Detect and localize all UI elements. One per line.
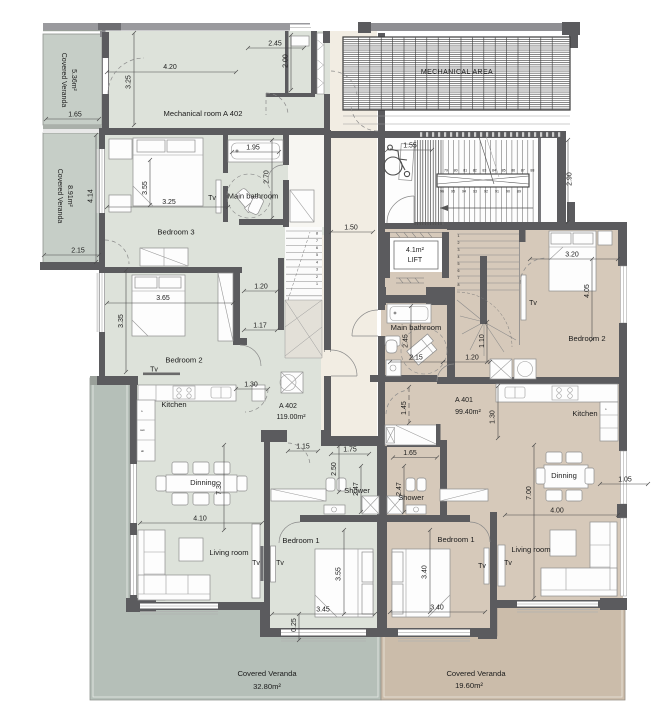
svg-text:A 402: A 402	[279, 403, 297, 410]
svg-text:Main bathroom: Main bathroom	[228, 192, 279, 201]
svg-text:91: 91	[495, 190, 499, 194]
svg-text:1.10: 1.10	[479, 334, 486, 348]
svg-text:Bedroom 2: Bedroom 2	[568, 334, 605, 343]
svg-text:3.40: 3.40	[430, 605, 444, 612]
svg-text:4.1m²: 4.1m²	[406, 247, 425, 254]
svg-text:Tv: Tv	[150, 367, 158, 374]
svg-text:7.00: 7.00	[526, 486, 533, 500]
svg-text:4.10: 4.10	[193, 516, 207, 523]
svg-text:Living room: Living room	[209, 548, 248, 557]
svg-text:2.15: 2.15	[71, 248, 85, 255]
svg-text:1.55: 1.55	[403, 143, 417, 150]
svg-text:8.91m²: 8.91m²	[66, 185, 73, 207]
svg-text:1.17: 1.17	[253, 323, 267, 330]
svg-text:119.00m²: 119.00m²	[276, 414, 306, 421]
svg-text:4.05: 4.05	[584, 284, 591, 298]
svg-text:88: 88	[530, 169, 534, 173]
svg-text:Shower: Shower	[398, 493, 424, 502]
svg-text:Covered Veranda: Covered Veranda	[60, 53, 67, 108]
svg-text:3.25: 3.25	[126, 75, 133, 89]
svg-text:8: 8	[458, 283, 460, 287]
svg-text:3.55: 3.55	[336, 567, 343, 581]
svg-text:Tv: Tv	[208, 195, 216, 202]
svg-text:2.00: 2.00	[283, 54, 290, 68]
svg-text:1: 1	[316, 282, 318, 286]
svg-text:Mechanical room A 402: Mechanical room A 402	[164, 109, 243, 118]
svg-text:Shower: Shower	[344, 486, 370, 495]
svg-text:92: 92	[484, 190, 488, 194]
svg-text:8: 8	[316, 232, 318, 236]
svg-text:1.45: 1.45	[401, 401, 408, 415]
svg-text:90: 90	[506, 190, 510, 194]
svg-text:o.: o.	[141, 410, 143, 413]
svg-text:32.80m²: 32.80m²	[253, 682, 281, 691]
svg-text:Tv: Tv	[504, 560, 512, 567]
svg-text:Bedroom 3: Bedroom 3	[157, 228, 194, 237]
svg-text:3.45: 3.45	[316, 607, 330, 614]
svg-text:A 401: A 401	[455, 397, 473, 404]
svg-text:1.65: 1.65	[68, 112, 82, 119]
svg-text:1.50: 1.50	[344, 225, 358, 232]
svg-text:5.36m²: 5.36m²	[70, 69, 77, 91]
svg-text:own: own	[140, 429, 145, 432]
svg-text:Living room: Living room	[511, 545, 550, 554]
svg-text:85: 85	[502, 169, 506, 173]
svg-text:93: 93	[473, 190, 477, 194]
svg-text:3.35: 3.35	[118, 314, 125, 328]
svg-text:3.40: 3.40	[422, 565, 429, 579]
svg-text:84: 84	[492, 169, 496, 173]
svg-text:7: 7	[316, 239, 318, 243]
svg-text:7.30: 7.30	[216, 481, 223, 495]
svg-text:81: 81	[463, 169, 467, 173]
svg-text:3.55: 3.55	[142, 181, 149, 195]
svg-text:1.30: 1.30	[244, 382, 258, 389]
svg-text:3.20: 3.20	[565, 252, 579, 259]
svg-text:4.00: 4.00	[550, 508, 564, 515]
svg-text:6: 6	[458, 269, 460, 273]
svg-text:95: 95	[451, 190, 455, 194]
svg-text:82: 82	[473, 169, 477, 173]
svg-text:2: 2	[316, 275, 318, 279]
svg-text:87: 87	[521, 169, 525, 173]
svg-text:Kitchen: Kitchen	[161, 400, 186, 409]
svg-text:79: 79	[444, 169, 448, 173]
svg-text:2.45: 2.45	[403, 334, 410, 348]
svg-text:Bedroom 2: Bedroom 2	[165, 356, 202, 365]
svg-text:96: 96	[440, 190, 444, 194]
svg-text:1.20: 1.20	[254, 284, 268, 291]
svg-text:2: 2	[458, 241, 460, 245]
svg-text:4.14: 4.14	[88, 189, 95, 203]
svg-text:3.25: 3.25	[162, 199, 176, 206]
svg-text:2.50: 2.50	[331, 462, 338, 476]
svg-text:1.75: 1.75	[343, 447, 357, 454]
svg-text:2.90: 2.90	[567, 172, 574, 186]
svg-text:LIFT: LIFT	[408, 257, 423, 264]
svg-text:86: 86	[511, 169, 515, 173]
svg-text:Tv: Tv	[478, 563, 486, 570]
svg-text:99.40m²: 99.40m²	[455, 409, 481, 416]
svg-text:2.70: 2.70	[264, 170, 271, 184]
svg-text:19.60m²: 19.60m²	[455, 681, 483, 690]
svg-text:Bedroom 1: Bedroom 1	[282, 536, 319, 545]
svg-text:MECHANICAL AREA: MECHANICAL AREA	[421, 69, 493, 76]
svg-text:Main bathroom: Main bathroom	[391, 323, 442, 332]
svg-text:89: 89	[517, 190, 521, 194]
svg-text:Covered Veranda: Covered Veranda	[237, 669, 297, 678]
svg-text:Kitchen: Kitchen	[572, 409, 597, 418]
svg-text:1.30: 1.30	[490, 410, 497, 424]
svg-text:3.65: 3.65	[156, 295, 170, 302]
svg-text:Tv: Tv	[252, 560, 260, 567]
svg-text:94: 94	[462, 190, 466, 194]
svg-text:Dinning: Dinning	[190, 478, 216, 487]
svg-text:4: 4	[316, 260, 318, 264]
svg-text:4: 4	[458, 255, 460, 259]
svg-text:0.25: 0.25	[291, 618, 298, 632]
svg-text:Tv: Tv	[276, 560, 284, 567]
svg-text:1.65: 1.65	[403, 450, 417, 457]
svg-text:4.20: 4.20	[163, 64, 177, 71]
svg-text:5: 5	[316, 253, 318, 257]
svg-text:Covered Veranda: Covered Veranda	[56, 169, 63, 224]
svg-text:1.20: 1.20	[465, 355, 479, 362]
svg-text:80: 80	[454, 169, 458, 173]
svg-text:Dinning: Dinning	[551, 471, 577, 480]
svg-text:3: 3	[458, 248, 460, 252]
svg-text:Bedroom 1: Bedroom 1	[437, 535, 474, 544]
svg-text:Tv: Tv	[529, 300, 537, 307]
svg-text:1.05: 1.05	[618, 477, 632, 484]
svg-text:1.95: 1.95	[246, 145, 260, 152]
svg-text:5: 5	[458, 262, 460, 266]
svg-text:7: 7	[458, 276, 460, 280]
svg-text:2.45: 2.45	[268, 41, 282, 48]
svg-text:83: 83	[482, 169, 486, 173]
svg-text:Covered Veranda: Covered Veranda	[446, 669, 506, 678]
svg-text:6: 6	[316, 246, 318, 250]
svg-text:1: 1	[458, 234, 460, 238]
svg-text:3: 3	[316, 268, 318, 272]
